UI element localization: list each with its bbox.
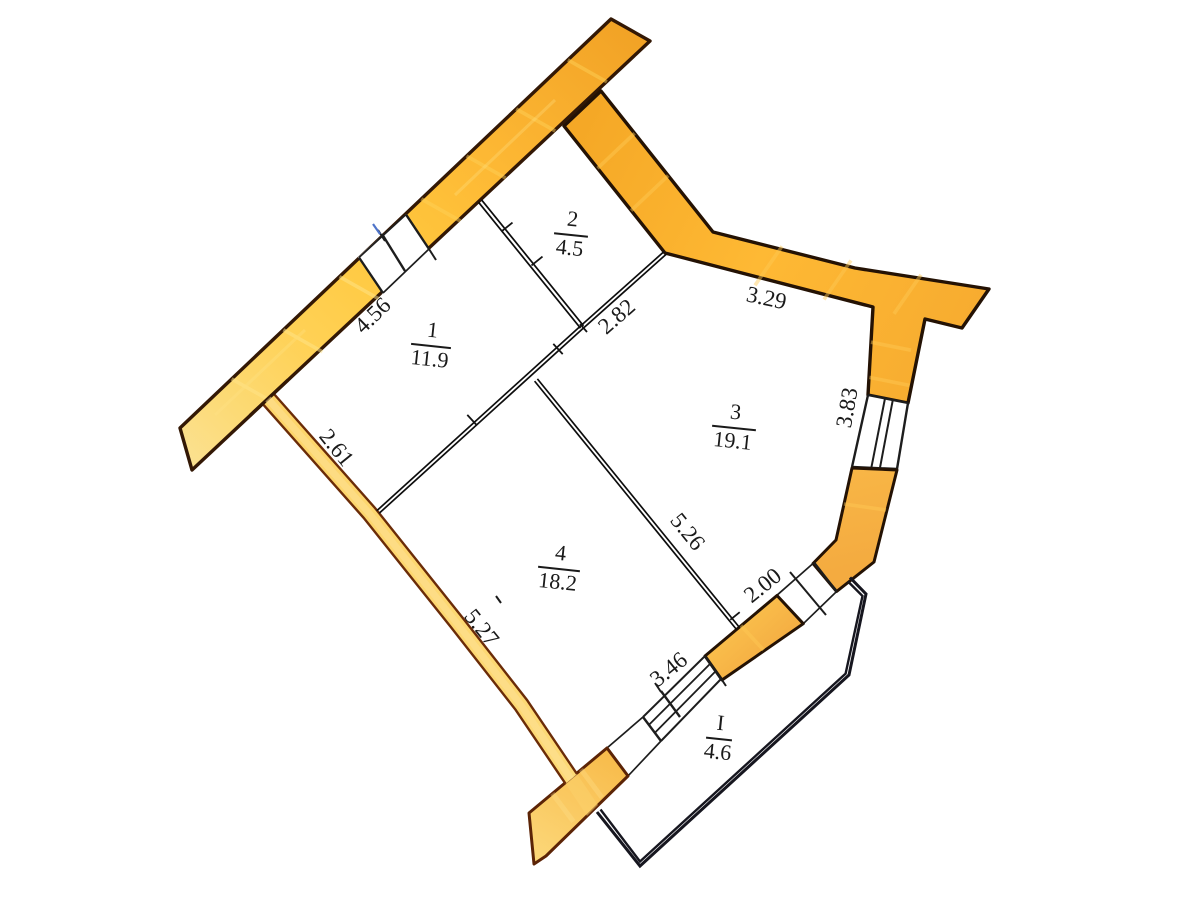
svg-text:4.6: 4.6 (703, 738, 733, 766)
svg-text:11.9: 11.9 (410, 344, 450, 373)
svg-text:4.5: 4.5 (555, 234, 585, 262)
svg-text:18.2: 18.2 (537, 567, 578, 596)
svg-text:19.1: 19.1 (712, 426, 753, 455)
